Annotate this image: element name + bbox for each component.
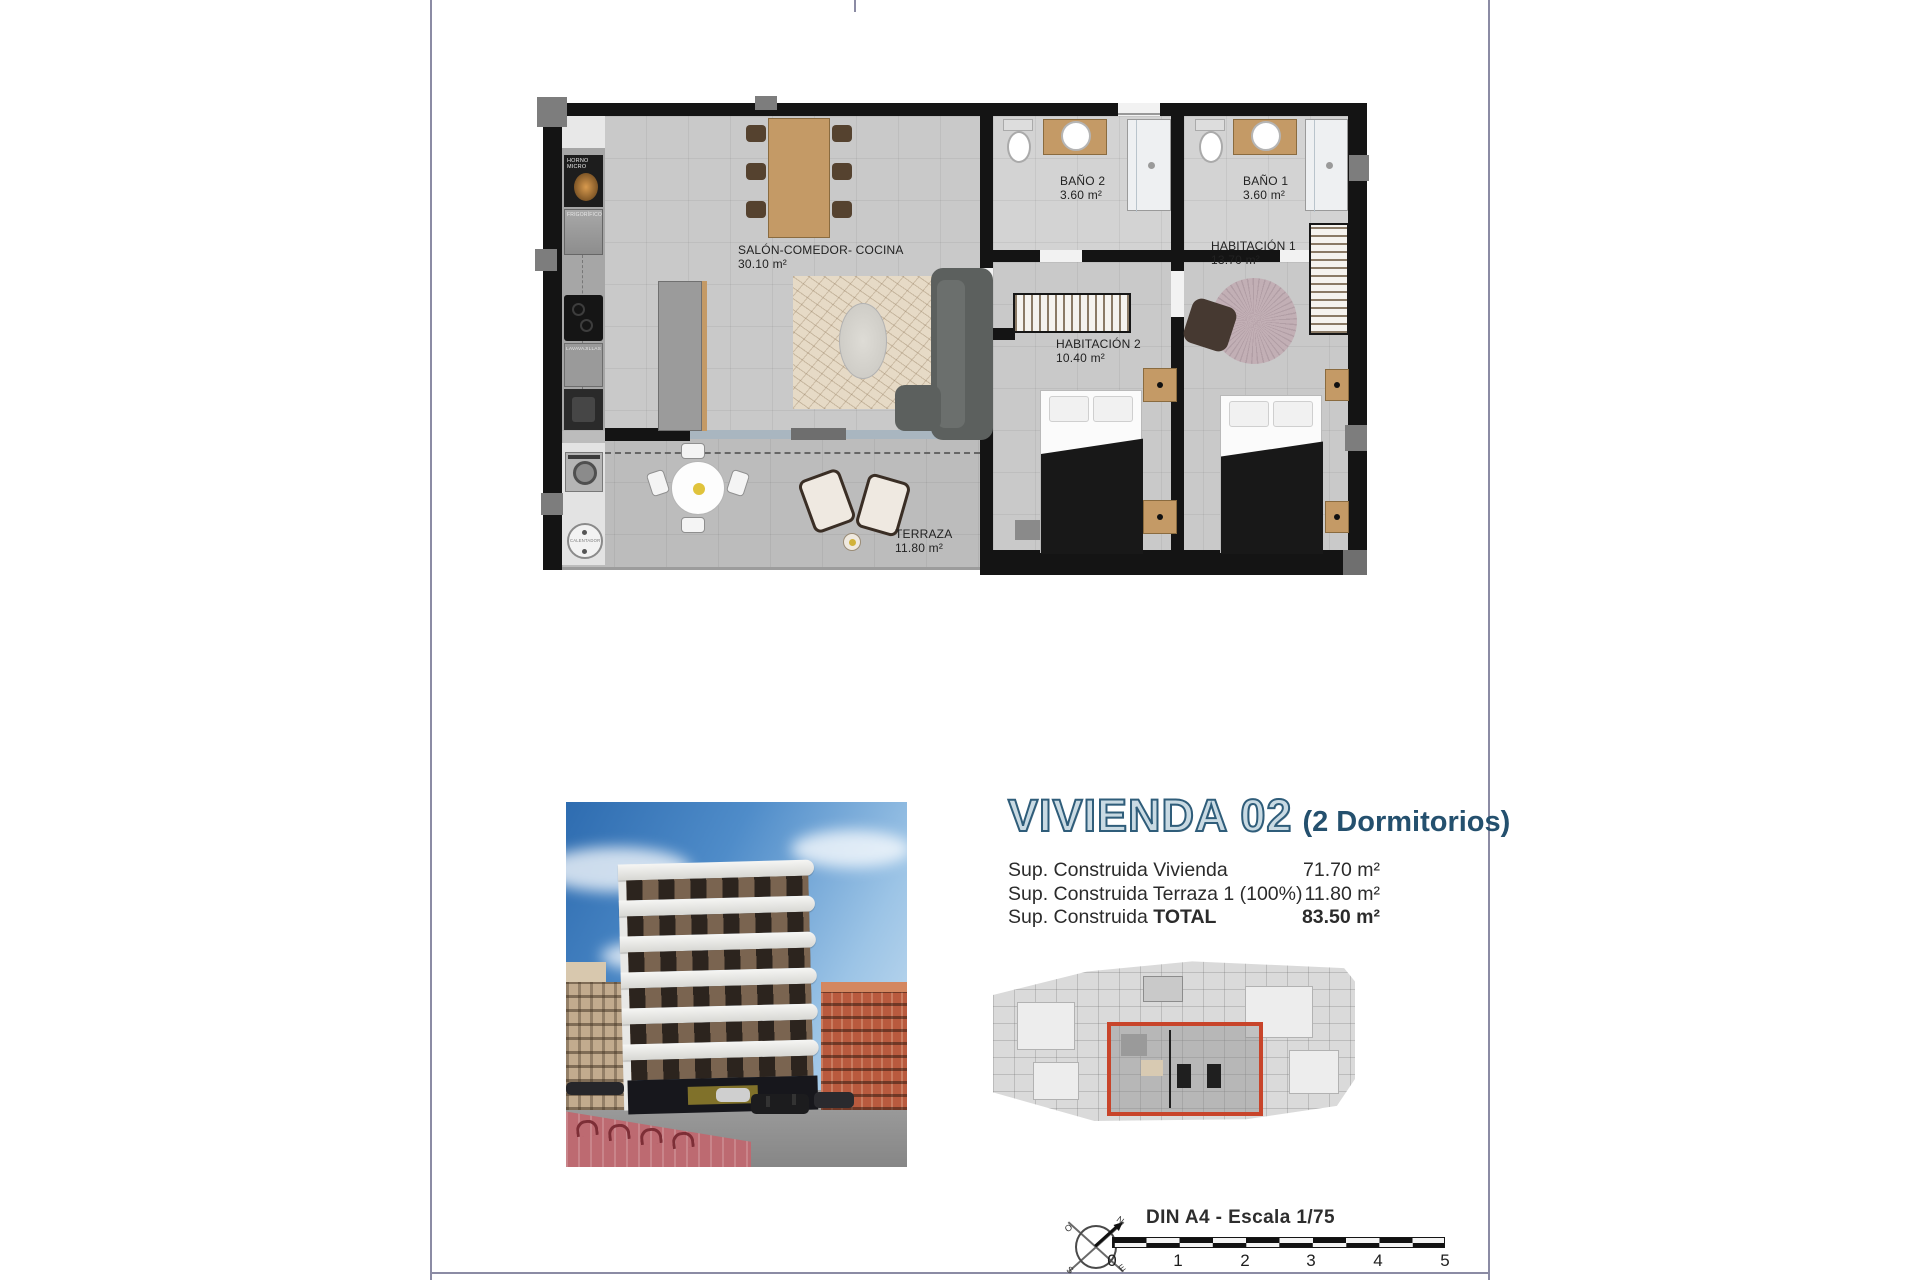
unit-mark bbox=[1141, 1060, 1163, 1076]
row-value: 83.50 m² bbox=[1302, 906, 1380, 930]
coffee-table bbox=[839, 303, 887, 379]
terrace-chair bbox=[681, 517, 705, 533]
page-fold-mark bbox=[854, 0, 856, 12]
oven-glow bbox=[574, 173, 598, 201]
bed-hab1 bbox=[1220, 395, 1322, 553]
van bbox=[716, 1088, 750, 1102]
side-table bbox=[843, 533, 861, 551]
dining-chair bbox=[832, 125, 852, 142]
overview-stairs bbox=[1143, 976, 1183, 1002]
area-table: Sup. Construida Vivienda 71.70 m² Sup. C… bbox=[1008, 859, 1380, 930]
overview-room bbox=[1033, 1062, 1079, 1100]
sink-bowl bbox=[572, 397, 595, 422]
car bbox=[751, 1094, 809, 1114]
shower-glass bbox=[1314, 120, 1315, 212]
scale-ticks: 0 1 2 3 4 5 bbox=[1112, 1251, 1445, 1271]
neighbor-roofline bbox=[821, 982, 907, 992]
shower-glass bbox=[1136, 120, 1137, 212]
unit-mark bbox=[1121, 1034, 1147, 1056]
room-label-habitacion2: HABITACIÓN 210.40 m² bbox=[1056, 337, 1141, 365]
pillar bbox=[1345, 425, 1367, 451]
pillar bbox=[1349, 155, 1369, 181]
toilet-tank bbox=[1195, 119, 1225, 131]
dishwasher-label: LAVAVAJILLAS bbox=[566, 347, 603, 353]
pillar bbox=[755, 96, 777, 110]
headboard-shelf bbox=[1013, 293, 1131, 333]
building-photo bbox=[566, 802, 907, 1167]
nightstand bbox=[1143, 500, 1177, 534]
pillar bbox=[541, 493, 563, 515]
unit-mark bbox=[1207, 1064, 1221, 1088]
pedestrian bbox=[792, 1094, 796, 1105]
dining-chair bbox=[746, 201, 766, 218]
sofa-seat bbox=[937, 280, 965, 428]
row-label: Sup. Construida Terraza 1 (100%) bbox=[1008, 883, 1302, 907]
dishwasher: LAVAVAJILLAS bbox=[564, 343, 603, 387]
table-row: Sup. Construida Terraza 1 (100%) 11.80 m… bbox=[1008, 883, 1380, 907]
wall-top bbox=[543, 103, 1367, 116]
wardrobe bbox=[1309, 223, 1349, 335]
washer-panel bbox=[568, 455, 600, 459]
oven-microwave: HORNO MICRO bbox=[564, 155, 603, 207]
scale-label: DIN A4 - Escala 1/75 bbox=[1146, 1207, 1335, 1229]
scale-bar bbox=[1112, 1237, 1445, 1248]
terrace-dashed-line bbox=[605, 452, 980, 454]
terrace-table bbox=[671, 461, 725, 515]
door-opening-hab1 bbox=[1171, 271, 1184, 317]
pillar bbox=[537, 97, 567, 127]
heater-dot bbox=[582, 549, 587, 554]
washbasin bbox=[1251, 121, 1281, 151]
wall-stub-hab2 bbox=[993, 328, 1015, 340]
parked-cars bbox=[566, 1082, 624, 1095]
fridge-label: FRIGORÍFICO bbox=[567, 212, 603, 218]
pillar bbox=[1343, 550, 1367, 575]
overview-room bbox=[1289, 1050, 1339, 1094]
dining-table bbox=[768, 118, 830, 238]
hob-ring bbox=[572, 303, 585, 316]
pillar bbox=[1015, 520, 1043, 540]
page-bottom-border bbox=[430, 1272, 1490, 1274]
unit-title-line: VIVIENDA 02(2 Dormitorios) bbox=[1008, 790, 1380, 842]
terraza-edge bbox=[562, 567, 980, 570]
hob-ring bbox=[580, 319, 593, 332]
page-left-border bbox=[430, 0, 432, 1280]
heater-dot bbox=[582, 530, 587, 535]
sofa-chaise bbox=[895, 385, 941, 431]
level-overview-plan bbox=[993, 958, 1355, 1126]
overview-room bbox=[1017, 1002, 1075, 1050]
dining-chair bbox=[832, 163, 852, 180]
room-label-habitacion1: HABITACIÓN 113.70 m² bbox=[1211, 239, 1296, 267]
shower bbox=[1305, 119, 1348, 211]
nightstand bbox=[1143, 368, 1177, 402]
shower-drain bbox=[1148, 162, 1155, 169]
page-subtitle: (2 Dormitorios) bbox=[1302, 806, 1510, 838]
washbasin bbox=[1061, 121, 1091, 151]
floor-plan: HORNO MICRO FRIGORÍFICO LAVAVAJILLAS CAL… bbox=[543, 103, 1367, 575]
car bbox=[814, 1092, 854, 1108]
pillow bbox=[1093, 396, 1133, 422]
main-building bbox=[618, 859, 824, 1110]
oven-label: HORNO MICRO bbox=[567, 158, 601, 170]
unit-wall bbox=[1169, 1030, 1171, 1108]
blanket bbox=[1041, 435, 1143, 554]
pedestrian bbox=[766, 1096, 770, 1107]
bed-hab2 bbox=[1040, 390, 1142, 553]
row-value: 11.80 m² bbox=[1304, 883, 1380, 907]
page-right-border bbox=[1488, 0, 1490, 1280]
water-heater-label: CALENTADOR bbox=[570, 538, 600, 544]
unit-mark bbox=[1177, 1064, 1191, 1088]
pillar bbox=[535, 249, 557, 271]
flowers bbox=[849, 539, 856, 546]
shower-drain bbox=[1326, 162, 1333, 169]
door-opening-bano2 bbox=[1040, 250, 1082, 262]
toilet bbox=[1199, 131, 1223, 163]
room-label-bano2: BAÑO 23.60 m² bbox=[1060, 174, 1105, 202]
washer-door bbox=[573, 461, 597, 485]
shower bbox=[1127, 119, 1171, 211]
water-heater: CALENTADOR bbox=[567, 523, 603, 559]
unit-info-panel: VIVIENDA 02(2 Dormitorios) Sup. Construi… bbox=[1008, 790, 1380, 930]
table-decor bbox=[693, 483, 705, 495]
table-row-total: Sup. Construida TOTAL 83.50 m² bbox=[1008, 906, 1380, 930]
row-value: 71.70 m² bbox=[1303, 859, 1380, 883]
kitchen-island bbox=[658, 281, 702, 431]
pillow bbox=[1229, 401, 1269, 427]
dining-chair bbox=[746, 125, 766, 142]
toilet bbox=[1007, 131, 1031, 163]
kitchen-entry-floor bbox=[562, 116, 605, 148]
pillow bbox=[1273, 401, 1313, 427]
washing-machine bbox=[565, 452, 603, 492]
terrace-chair bbox=[681, 443, 705, 459]
nightstand bbox=[1325, 501, 1349, 533]
fridge: FRIGORÍFICO bbox=[564, 209, 603, 255]
kitchen-sink bbox=[564, 389, 603, 430]
sliding-door-frame bbox=[791, 428, 846, 440]
pillow bbox=[1049, 396, 1089, 422]
room-label-terraza: TERRAZA11.80 m² bbox=[895, 527, 952, 555]
toilet-tank bbox=[1003, 119, 1033, 131]
compass-s: S bbox=[1065, 1264, 1076, 1276]
row-label: Sup. Construida TOTAL bbox=[1008, 906, 1216, 930]
row-label: Sup. Construida Vivienda bbox=[1008, 859, 1228, 883]
nightstand bbox=[1325, 369, 1349, 401]
dining-chair bbox=[832, 201, 852, 218]
island-wood-edge bbox=[702, 281, 707, 431]
entrance-threshold bbox=[1118, 113, 1160, 115]
room-label-salon: SALÓN-COMEDOR- COCINA30.10 m² bbox=[738, 243, 904, 271]
dining-chair bbox=[746, 163, 766, 180]
room-label-bano1: BAÑO 13.60 m² bbox=[1243, 174, 1288, 202]
table-row: Sup. Construida Vivienda 71.70 m² bbox=[1008, 859, 1380, 883]
blanket bbox=[1221, 438, 1323, 554]
plan-sheet-page: HORNO MICRO FRIGORÍFICO LAVAVAJILLAS CAL… bbox=[0, 0, 1920, 1280]
induction-hob bbox=[564, 295, 603, 341]
highlighted-unit bbox=[1107, 1022, 1263, 1116]
page-title: VIVIENDA 02 bbox=[1008, 790, 1292, 841]
wall-banos-divider bbox=[1171, 116, 1184, 250]
